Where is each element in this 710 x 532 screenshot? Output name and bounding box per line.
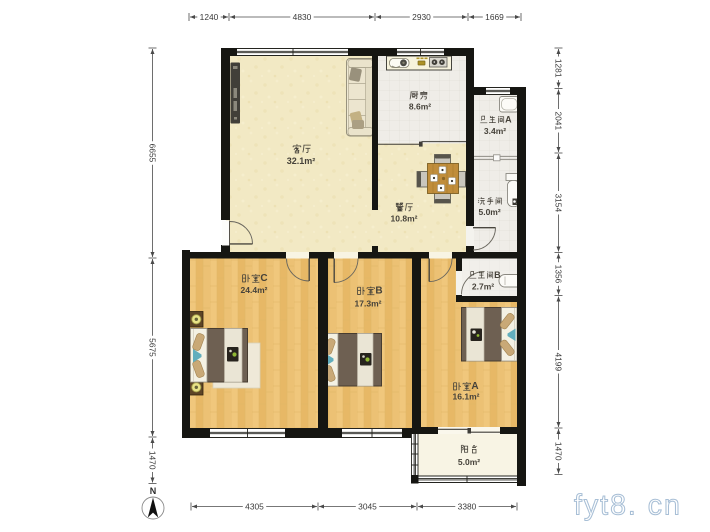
svg-text:4830: 4830 (293, 12, 312, 22)
svg-text:3154: 3154 (554, 193, 564, 212)
svg-text:1669: 1669 (485, 12, 504, 22)
svg-text:B: B (494, 270, 501, 280)
svg-text:10.8m²: 10.8m² (391, 214, 418, 224)
svg-text:A: A (505, 115, 512, 125)
svg-text:3380: 3380 (458, 502, 477, 512)
svg-text:2930: 2930 (412, 12, 431, 22)
svg-text:1240: 1240 (200, 12, 219, 22)
svg-text:4199: 4199 (554, 352, 564, 371)
svg-text:4305: 4305 (245, 502, 264, 512)
svg-text:2.7m²: 2.7m² (472, 282, 494, 292)
svg-text:1470: 1470 (554, 442, 564, 461)
svg-text:17.3m²: 17.3m² (355, 299, 382, 309)
svg-text:32.1m²: 32.1m² (287, 156, 316, 166)
svg-text:A: A (471, 381, 478, 392)
svg-text:24.4m²: 24.4m² (241, 285, 268, 295)
svg-text:5675: 5675 (148, 338, 158, 357)
svg-text:1281: 1281 (554, 59, 564, 78)
svg-text:1470: 1470 (148, 451, 158, 470)
svg-text:5.0m²: 5.0m² (478, 207, 500, 217)
svg-text:6655: 6655 (148, 144, 158, 163)
svg-text:1356: 1356 (554, 265, 564, 284)
svg-text:3045: 3045 (358, 502, 377, 512)
svg-text:5.0m²: 5.0m² (458, 457, 480, 467)
svg-text:2041: 2041 (554, 111, 564, 130)
svg-text:fyt8. cn: fyt8. cn (574, 490, 682, 522)
svg-text:16.1m²: 16.1m² (453, 392, 480, 402)
svg-text:C: C (260, 273, 267, 284)
svg-text:N: N (150, 486, 157, 496)
svg-text:B: B (375, 286, 382, 297)
svg-text:8.6m²: 8.6m² (409, 102, 431, 112)
svg-text:3.4m²: 3.4m² (484, 126, 506, 136)
